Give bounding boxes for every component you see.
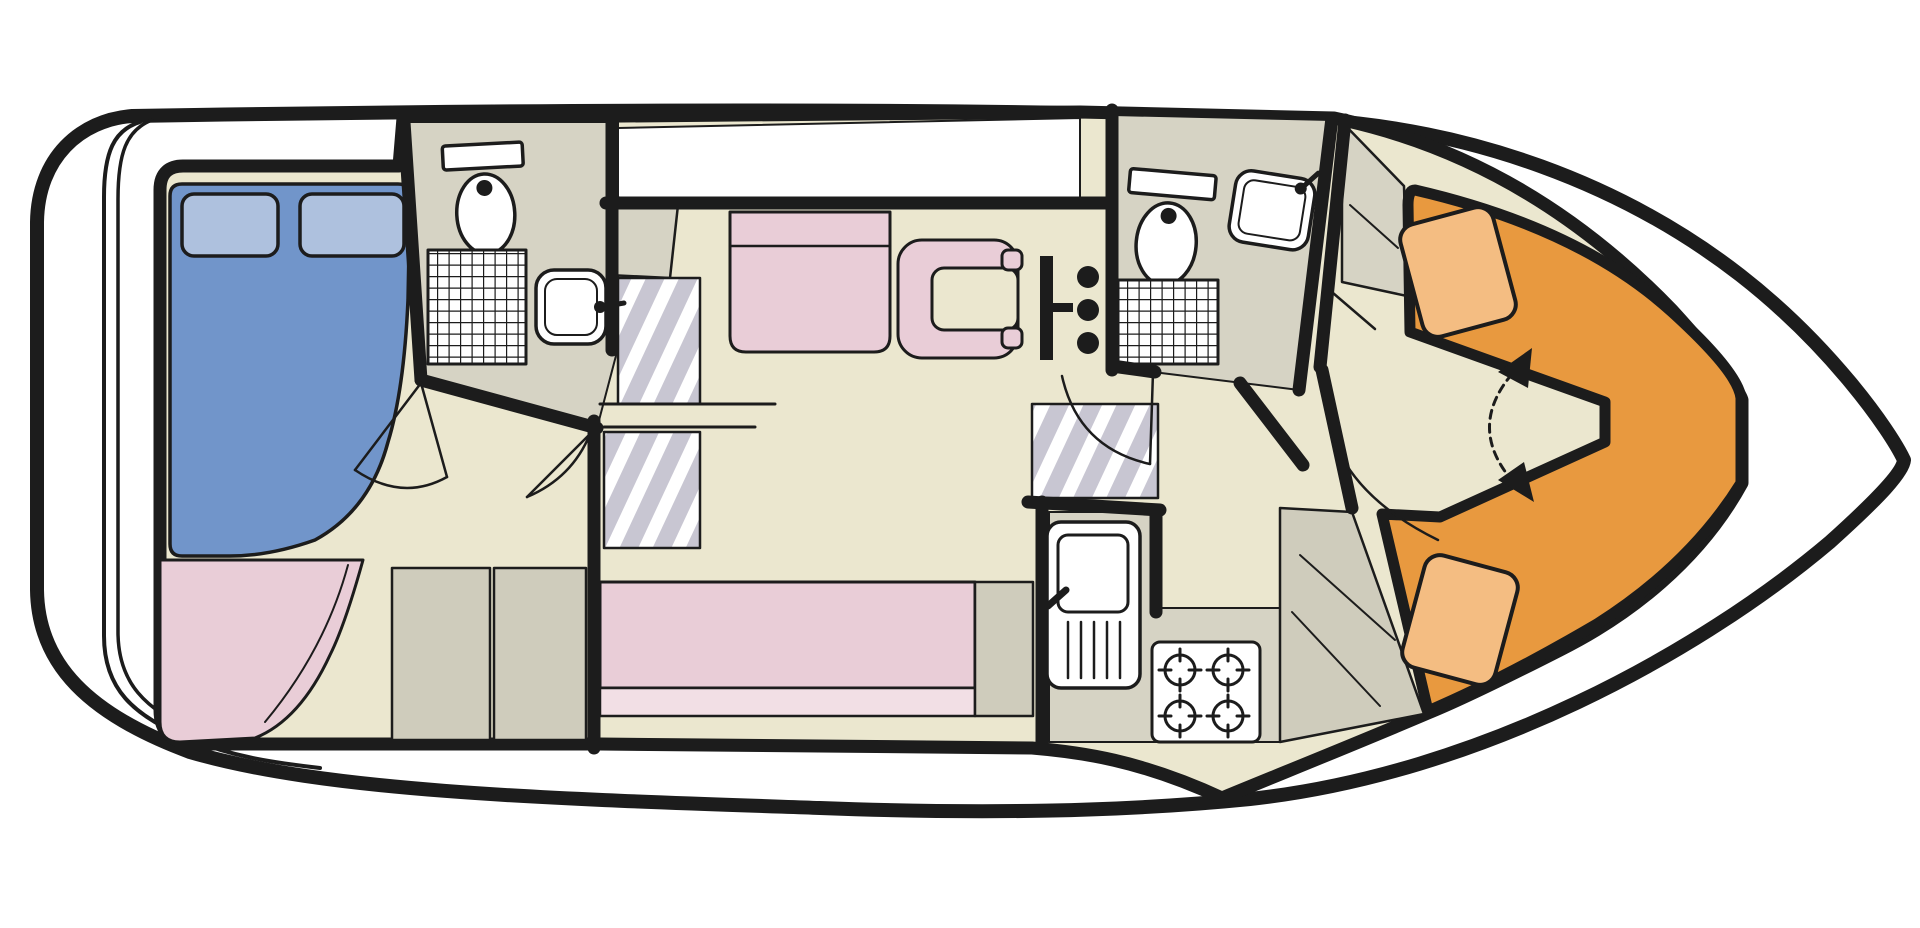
console-stub: [1053, 303, 1073, 312]
aft-washbasin-tap-dot: [594, 301, 606, 313]
console-bar: [1040, 256, 1053, 360]
helm-seat-arm-top: [1002, 250, 1022, 270]
stair-flight-upper: [618, 278, 700, 404]
galley-sink: [1047, 522, 1140, 688]
forward-shower: [1118, 280, 1218, 364]
pillow-left: [182, 194, 278, 256]
forward-toilet-cistern: [1129, 168, 1217, 199]
storage-cabinet-left: [392, 568, 490, 740]
long-sofa-seat: [600, 688, 975, 716]
forward-bathroom-wall-bottom: [1112, 366, 1155, 372]
storage-cabinet-right: [494, 568, 586, 740]
helm-seat-inner: [932, 268, 1018, 330]
pillow-right: [300, 194, 404, 256]
stair-flight-lower: [604, 432, 700, 548]
stair-flight-galley: [1032, 404, 1158, 498]
deck-plan: [37, 110, 1904, 811]
windshield-band: [618, 118, 1080, 205]
deck-plan-svg: [0, 0, 1920, 928]
helm-seat-arm-bottom: [1002, 328, 1022, 348]
bench-seat: [730, 212, 890, 352]
deck-plan-canvas: [0, 0, 1920, 928]
long-sofa-back: [600, 582, 975, 688]
instrument-dot-1: [1077, 266, 1099, 288]
aft-shower: [428, 250, 526, 364]
instrument-dot-3: [1077, 332, 1099, 354]
galley-stove: [1152, 642, 1260, 742]
instrument-dot-2: [1077, 299, 1099, 321]
aft-toilet-cistern: [442, 142, 523, 170]
sofa-end-cabinet: [975, 582, 1033, 716]
